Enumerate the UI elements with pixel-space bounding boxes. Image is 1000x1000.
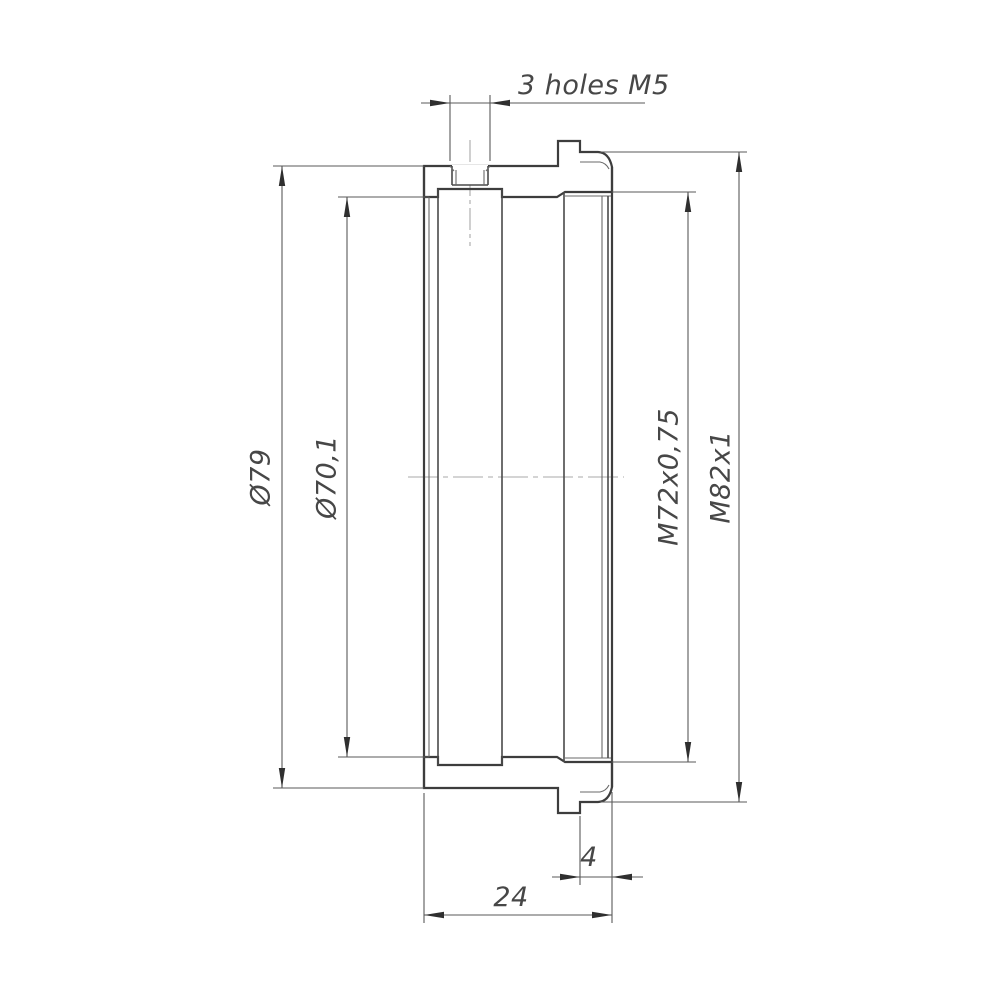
dimension-step-length: 4 (552, 816, 643, 885)
dim-label-thread-outer: M82x1 (706, 430, 737, 523)
relief-root-line-bottom (580, 785, 609, 792)
dimension-holes-note: 3 holes M5 (421, 70, 670, 161)
arrow-down (685, 742, 691, 762)
m5-hole-section (450, 165, 490, 185)
centerlines (408, 140, 624, 477)
dim-label-outer-diameter: Ø79 (246, 448, 277, 506)
arrow-down (344, 737, 350, 757)
arrow-up (685, 192, 691, 212)
arrow-left (612, 874, 632, 880)
bottom-wall-section (424, 757, 612, 813)
section-bottom-wall (424, 757, 612, 813)
arrow-right (430, 100, 450, 106)
relief-clear-bottom (580, 792, 600, 800)
arrow-up (279, 166, 285, 186)
arrow-up (736, 152, 742, 172)
arrow-left (424, 912, 444, 918)
m5-hole-clear (452, 165, 488, 185)
section-top-wall (424, 141, 612, 197)
arrow-left (490, 100, 510, 106)
dim-label-thread-inner: M72x0,75 (654, 408, 685, 546)
arrow-down (279, 768, 285, 788)
arrow-right (592, 912, 612, 918)
arrow-down (736, 782, 742, 802)
m82-thread-relief-top (580, 154, 609, 169)
m82-thread-relief-bottom (580, 785, 609, 800)
dim-label-overall-length: 24 (493, 882, 528, 913)
drawing-sheet: Ø79 Ø70,1 M72x0,75 M82x1 3 holes M5 (0, 0, 1000, 1000)
dim-label-bore-diameter: Ø70,1 (312, 435, 343, 520)
relief-root-line-top (580, 162, 609, 169)
dim-label-step-length: 4 (580, 842, 598, 873)
section-drawing: Ø79 Ø70,1 M72x0,75 M82x1 3 holes M5 (0, 0, 1000, 1000)
arrow-right (560, 874, 580, 880)
arrow-up (344, 197, 350, 217)
note-holes-label: 3 holes M5 (518, 70, 670, 101)
relief-clear-top (580, 154, 600, 162)
dimension-thread-inner: M72x0,75 (612, 192, 696, 762)
